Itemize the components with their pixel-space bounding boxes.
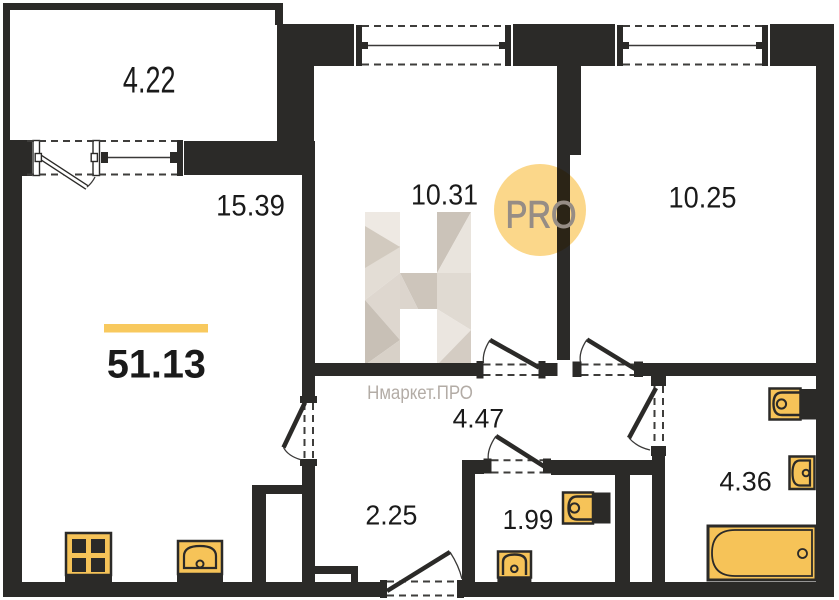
svg-text:4.22: 4.22 [123, 59, 176, 100]
svg-text:15.39: 15.39 [216, 190, 285, 223]
svg-text:4.47: 4.47 [453, 403, 504, 433]
svg-text:4.36: 4.36 [719, 466, 771, 496]
svg-text:51.13: 51.13 [107, 342, 206, 386]
svg-text:Нмаркет.ПРО: Нмаркет.ПРО [367, 382, 473, 403]
svg-text:2.25: 2.25 [365, 499, 417, 530]
svg-text:1.99: 1.99 [503, 504, 554, 535]
svg-text:10.31: 10.31 [411, 179, 478, 211]
svg-text:10.25: 10.25 [669, 180, 737, 213]
svg-text:PRO: PRO [506, 193, 577, 236]
